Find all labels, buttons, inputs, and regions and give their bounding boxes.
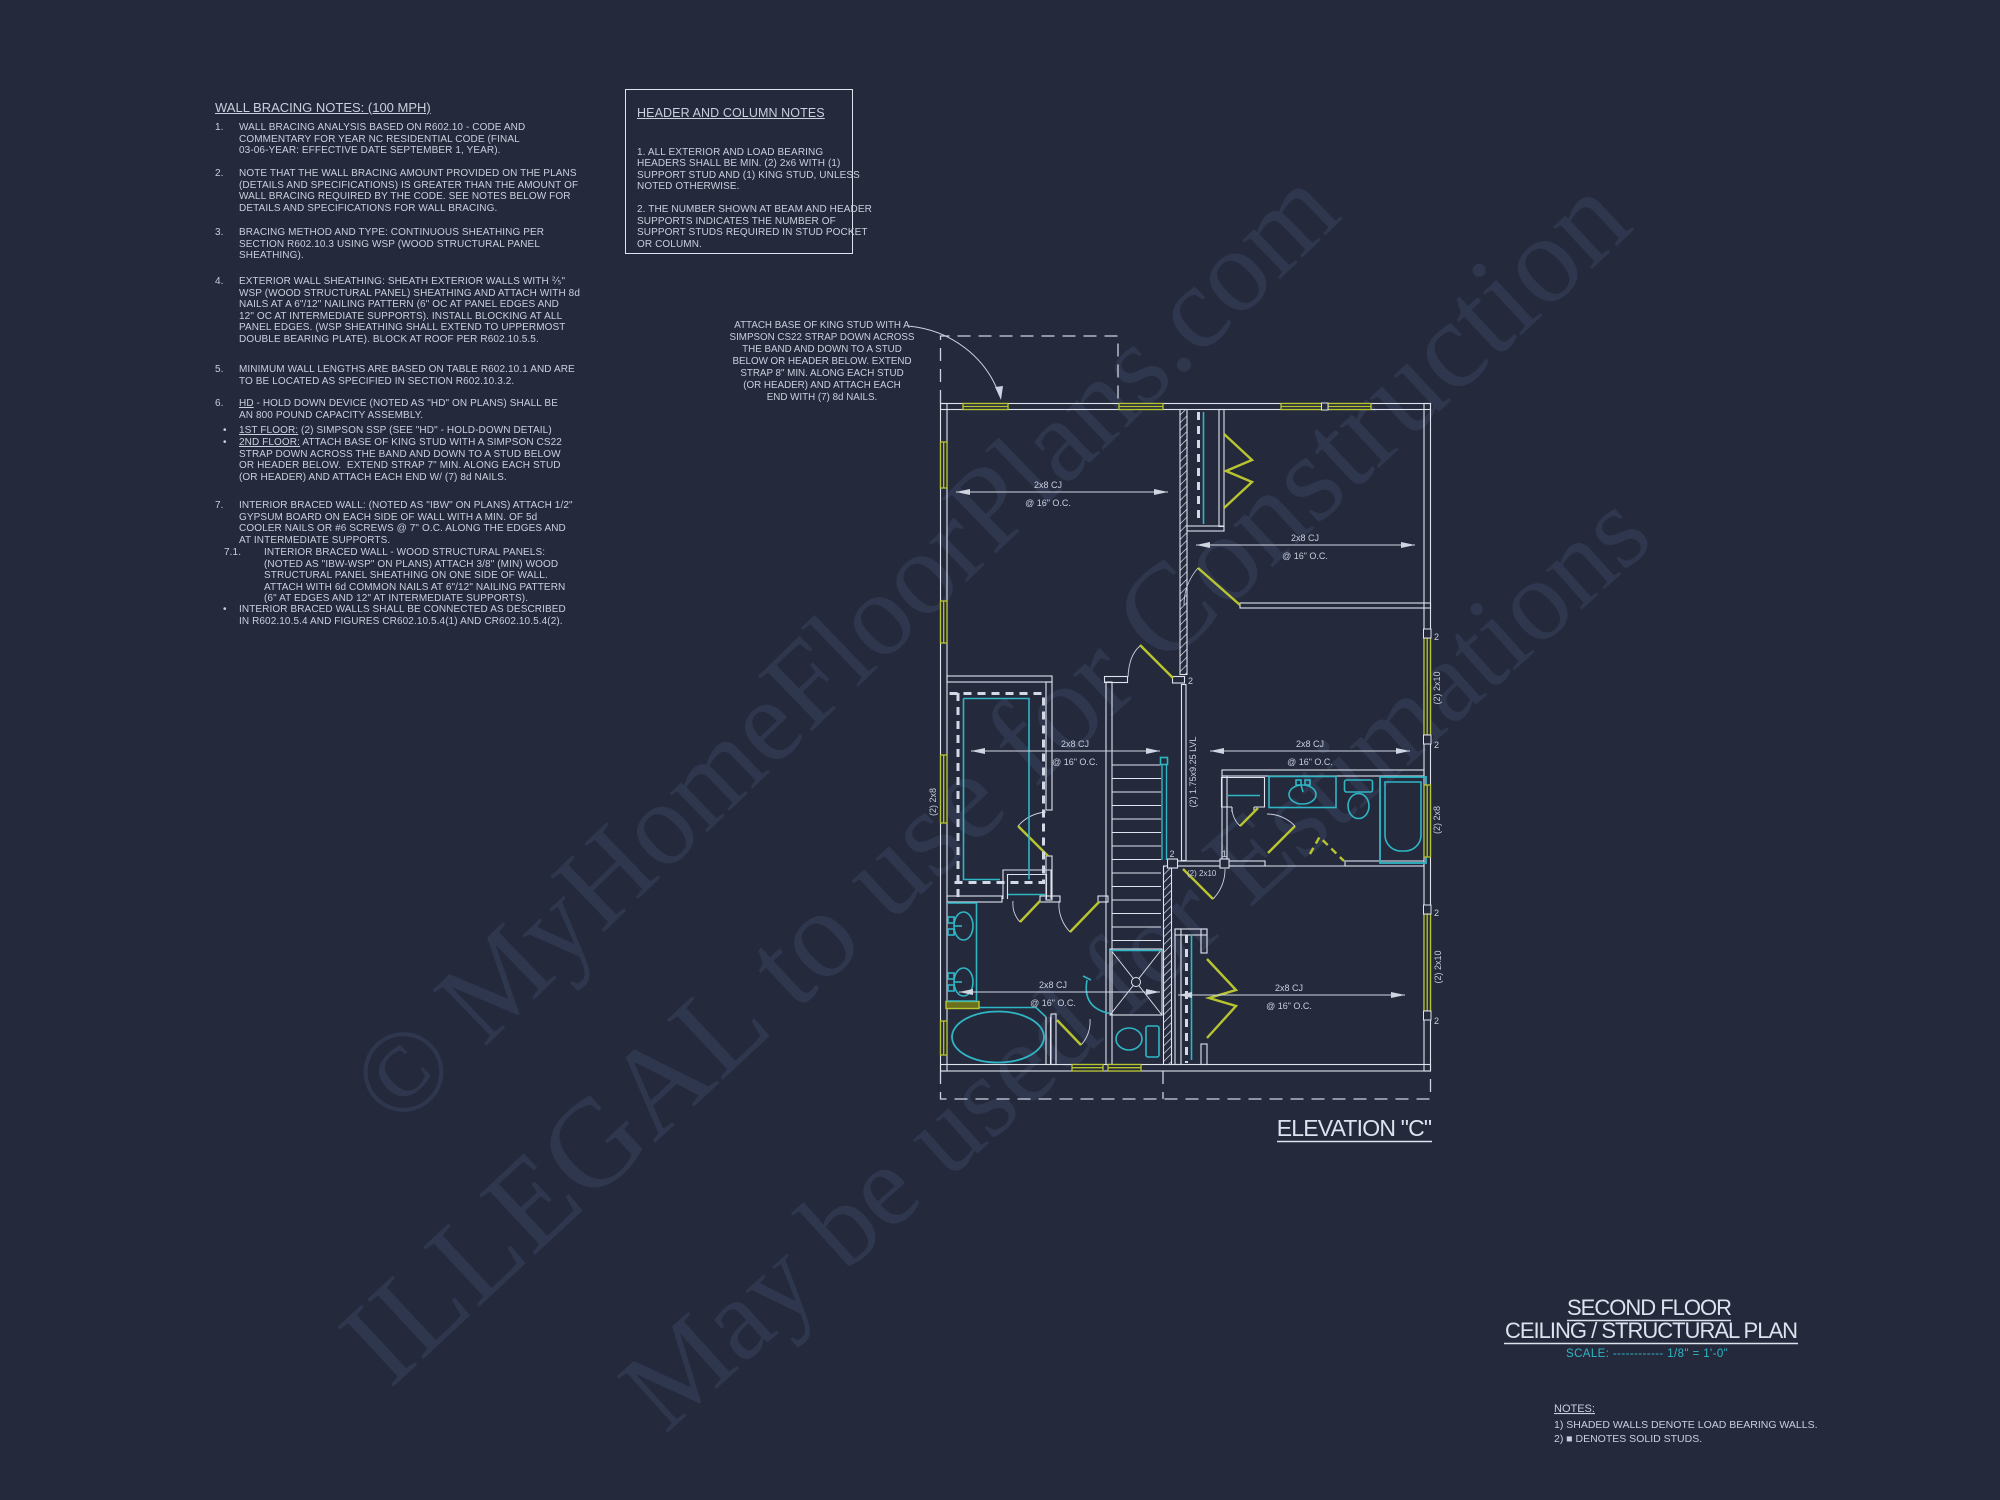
svg-text:THE BAND AND DOWN TO A STUD: THE BAND AND DOWN TO A STUD — [742, 344, 902, 355]
svg-text:2: 2 — [1169, 849, 1174, 859]
svg-text:2: 2 — [1434, 632, 1439, 642]
svg-text:STRAP 8" MIN. ALONG EACH STUD: STRAP 8" MIN. ALONG EACH STUD — [740, 368, 903, 379]
svg-text:BELOW OR HEADER BELOW. EXTEND: BELOW OR HEADER BELOW. EXTEND — [732, 356, 911, 367]
svg-text:1) SHADED WALLS DENOTE LOAD BE: 1) SHADED WALLS DENOTE LOAD BEARING WALL… — [1554, 1419, 1818, 1431]
svg-text:(2) 2x8: (2) 2x8 — [1432, 806, 1442, 834]
svg-text:SCALE: ------------ 1/8" = 1'-: SCALE: ------------ 1/8" = 1'-0" — [1566, 1348, 1728, 1360]
svg-text:NOTES:: NOTES: — [1554, 1403, 1595, 1415]
svg-text:(2) 2x8: (2) 2x8 — [928, 788, 938, 816]
svg-text:(2) 2x10: (2) 2x10 — [1432, 671, 1442, 704]
svg-text:2x8 CJ: 2x8 CJ — [1291, 533, 1319, 543]
svg-text:ELEVATION "C": ELEVATION "C" — [1277, 1115, 1432, 1141]
svg-text:SIMPSON CS22 STRAP DOWN ACROSS: SIMPSON CS22 STRAP DOWN ACROSS — [730, 332, 915, 343]
svg-text:ATTACH BASE OF KING STUD WITH: ATTACH BASE OF KING STUD WITH A — [734, 320, 910, 331]
svg-text:2x8 CJ: 2x8 CJ — [1039, 980, 1067, 990]
svg-text:CEILING / STRUCTURAL PLAN: CEILING / STRUCTURAL PLAN — [1505, 1318, 1797, 1343]
svg-text:2) ■ DENOTES SOLID STUDS.: 2) ■ DENOTES SOLID STUDS. — [1554, 1433, 1702, 1445]
svg-text:(2) 1.75x9.25 LVL: (2) 1.75x9.25 LVL — [1188, 737, 1198, 808]
svg-text:2: 2 — [1434, 908, 1439, 918]
svg-text:@ 16" O.C.: @ 16" O.C. — [1266, 1001, 1312, 1011]
svg-text:(2) 2x10: (2) 2x10 — [1187, 869, 1217, 878]
svg-text:END WITH (7) 8d NAILS.: END WITH (7) 8d NAILS. — [767, 392, 878, 403]
svg-text:@ 16" O.C.: @ 16" O.C. — [1287, 757, 1333, 767]
svg-text:@ 16" O.C.: @ 16" O.C. — [1025, 498, 1071, 508]
svg-text:2x8 CJ: 2x8 CJ — [1275, 983, 1303, 993]
svg-text:@ 16" O.C.: @ 16" O.C. — [1030, 998, 1076, 1008]
svg-text:2x8 CJ: 2x8 CJ — [1296, 739, 1324, 749]
svg-text:(OR HEADER) AND ATTACH EACH: (OR HEADER) AND ATTACH EACH — [743, 380, 901, 391]
svg-text:2: 2 — [1434, 740, 1439, 750]
svg-text:(2) 2x10: (2) 2x10 — [1433, 950, 1443, 983]
svg-text:2x8 CJ: 2x8 CJ — [1034, 480, 1062, 490]
svg-text:@ 16" O.C.: @ 16" O.C. — [1052, 757, 1098, 767]
svg-text:2x8 CJ: 2x8 CJ — [1061, 739, 1089, 749]
svg-text:SECOND FLOOR: SECOND FLOOR — [1567, 1295, 1731, 1320]
svg-text:2: 2 — [1434, 1016, 1439, 1026]
svg-text:2: 2 — [1188, 676, 1193, 686]
svg-text:1: 1 — [1222, 849, 1227, 859]
svg-text:@ 16" O.C.: @ 16" O.C. — [1282, 551, 1328, 561]
